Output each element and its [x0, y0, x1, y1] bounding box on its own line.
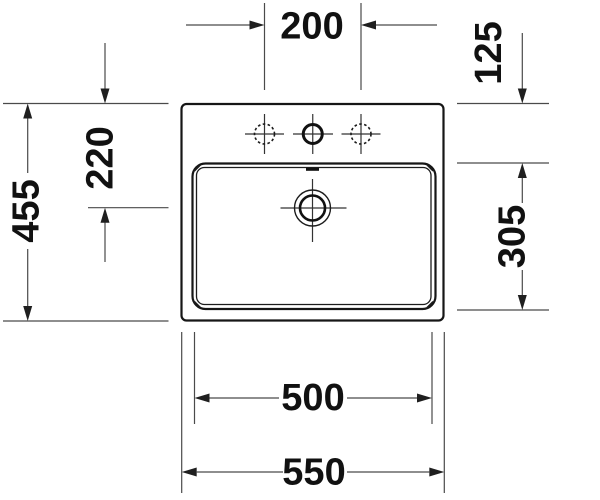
dimension-labels: 200 125 455 220 305 500 550	[6, 6, 534, 494]
label-bowl-depth: 305	[492, 205, 534, 268]
arrowhead-right	[250, 21, 265, 30]
arrowhead-left	[195, 394, 210, 403]
faucet-hole-center	[293, 114, 333, 154]
label-edge-to-bowl: 125	[468, 21, 510, 84]
dimension-lines	[23, 21, 527, 477]
arrowhead-right	[417, 394, 432, 403]
arrowhead-right	[429, 468, 444, 477]
label-bowl-width: 500	[281, 377, 344, 419]
drawing-canvas: 200 125 455 220 305 500 550	[0, 0, 600, 500]
arrowhead-down	[518, 89, 527, 104]
label-overall-depth: 455	[6, 179, 48, 242]
arrowhead-left	[361, 21, 376, 30]
arrowhead-down	[23, 306, 32, 321]
faucet-hole-left-optional	[245, 114, 284, 154]
bowl-rim-outer	[193, 164, 436, 310]
arrowhead-up	[101, 208, 110, 223]
dim-125-edge-to-bowl	[518, 33, 527, 104]
label-overall-width: 550	[282, 452, 345, 494]
label-faucet-spacing: 200	[280, 6, 343, 48]
arrowhead-left	[182, 468, 197, 477]
arrowhead-down	[101, 89, 110, 104]
bowl-corner-ticks	[195, 165, 434, 308]
washbasin-dimension-drawing: 200 125 455 220 305 500 550	[0, 0, 600, 500]
drain	[281, 179, 347, 242]
label-edge-to-drain: 220	[80, 126, 122, 189]
overflow-slot	[306, 168, 319, 171]
arrowhead-down	[518, 295, 527, 310]
bowl-rim-inner	[197, 168, 432, 305]
arrowhead-up	[23, 104, 32, 119]
arrowhead-up	[518, 163, 527, 178]
overflow-mark	[306, 168, 319, 171]
faucet-hole-right-optional	[342, 114, 381, 154]
faucet-holes	[245, 114, 381, 154]
